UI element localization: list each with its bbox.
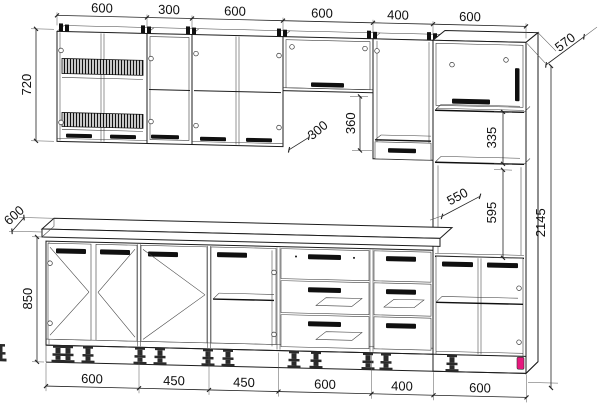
dim-niche-335: 335 bbox=[484, 127, 499, 149]
handle bbox=[386, 289, 416, 295]
base-cabinet-600-drawers bbox=[281, 249, 369, 349]
dim-wall-depth: 300 bbox=[304, 117, 330, 142]
hinge-icon bbox=[272, 270, 277, 275]
wall-open-unit-400 bbox=[373, 39, 433, 160]
accent-foot-marker bbox=[517, 357, 524, 369]
dim-oven-niche-595: 595 bbox=[484, 202, 499, 224]
hinge-icon bbox=[290, 45, 295, 50]
dish-rack-upper bbox=[62, 58, 143, 75]
dim-bottom-1: 600 bbox=[81, 371, 103, 387]
hinge-icon bbox=[450, 62, 455, 67]
dim-niche-360: 360 bbox=[343, 112, 358, 134]
hinge-icon bbox=[277, 53, 282, 58]
dim-bottom-2: 450 bbox=[163, 373, 185, 389]
dim-top-6: 600 bbox=[459, 9, 481, 25]
base-cabinet-450-door bbox=[141, 245, 207, 343]
dim-wall-height: 720 bbox=[19, 74, 34, 96]
hinge-icon bbox=[517, 286, 522, 291]
hinge-icon bbox=[277, 125, 282, 130]
handle bbox=[66, 134, 92, 139]
handle bbox=[311, 82, 344, 87]
handle bbox=[217, 252, 247, 258]
handle bbox=[56, 248, 86, 254]
oblique-view: 600 300 600 600 400 600 600 450 450 600 … bbox=[0, 0, 597, 404]
dim-top-2: 300 bbox=[158, 2, 180, 18]
drawing-canvas: 600 300 600 600 400 600 600 450 450 600 … bbox=[0, 0, 600, 408]
dim-top-5: 400 bbox=[387, 7, 409, 23]
handle bbox=[151, 135, 179, 140]
handle bbox=[487, 262, 518, 268]
dim-top-4: 600 bbox=[311, 5, 333, 21]
handle bbox=[452, 99, 490, 105]
hinge-icon bbox=[59, 120, 64, 125]
dim-total-height: 2145 bbox=[533, 208, 548, 237]
hinge-icon bbox=[194, 51, 199, 56]
hinge-icon bbox=[517, 340, 522, 345]
handle bbox=[308, 321, 341, 327]
handle bbox=[442, 261, 473, 267]
dim-top-3: 600 bbox=[224, 3, 246, 19]
wall-cabinet-600-liftup bbox=[283, 37, 373, 93]
handle bbox=[200, 137, 226, 142]
hinge-icon bbox=[272, 332, 277, 337]
hinge-icon bbox=[48, 261, 53, 266]
wall-cabinet-600-dish bbox=[57, 31, 147, 143]
dim-bottom-5: 400 bbox=[391, 378, 413, 394]
dim-base-height: 850 bbox=[20, 288, 35, 310]
dim-counter-depth: 600 bbox=[1, 202, 27, 228]
dim-bottom-6: 600 bbox=[469, 380, 491, 396]
dim-top-1: 600 bbox=[91, 0, 113, 16]
base-cabinet-400-drawers bbox=[374, 251, 431, 350]
wall-cabinet-300 bbox=[147, 33, 192, 144]
wall-cabinet-600 bbox=[192, 35, 283, 147]
base-cabinet-450-shelf bbox=[211, 247, 276, 347]
dim-bottom-3: 450 bbox=[233, 374, 255, 390]
handle bbox=[246, 138, 272, 143]
hinge-icon bbox=[194, 123, 199, 128]
hinge-icon bbox=[149, 56, 154, 61]
handle bbox=[100, 249, 130, 255]
dish-rack-lower bbox=[62, 112, 143, 128]
handle bbox=[388, 148, 416, 153]
hinge-icon bbox=[363, 46, 368, 51]
kitchen-technical-drawing: 600 300 600 600 400 600 600 450 450 600 … bbox=[0, 0, 600, 408]
handle bbox=[110, 135, 136, 140]
handle bbox=[386, 256, 416, 262]
hinge-icon bbox=[375, 49, 380, 54]
hinge-icon bbox=[59, 48, 64, 53]
handle-vertical bbox=[515, 68, 520, 101]
hinge-icon bbox=[48, 321, 53, 326]
handle bbox=[308, 254, 341, 260]
handle bbox=[386, 323, 416, 329]
dim-bottom-4: 600 bbox=[314, 376, 336, 392]
wall-cabinets bbox=[57, 23, 440, 160]
hinge-icon bbox=[149, 119, 154, 124]
handle bbox=[308, 287, 341, 293]
hinge-icon bbox=[504, 58, 509, 63]
